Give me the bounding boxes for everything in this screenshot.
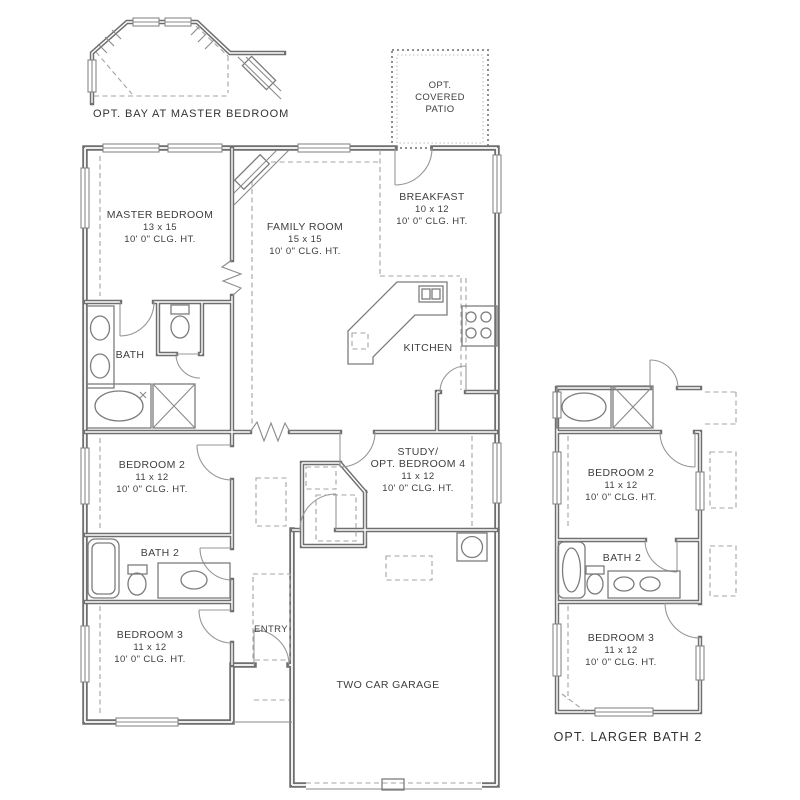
master-bath-fixtures <box>87 305 195 428</box>
master-bedroom-dims: 13 x 15 <box>143 222 177 233</box>
patio-label-1: OPT. <box>429 80 452 91</box>
breakfast-label: BREAKFAST <box>399 191 465 203</box>
inset-bedroom3-dims: 11 x 12 <box>604 645 637 656</box>
family-room-ceiling: 10' 0" CLG. HT. <box>269 246 340 257</box>
bedroom3-ceiling: 10' 0" CLG. HT. <box>114 654 185 665</box>
study-label-1: STUDY/ <box>398 446 439 458</box>
bedroom2-dims: 11 x 12 <box>135 472 168 483</box>
bedroom3-label: BEDROOM 3 <box>117 629 184 641</box>
fireplace-family <box>234 150 289 205</box>
bedroom3-dims: 11 x 12 <box>133 642 166 653</box>
floor-plan-canvas: OPT. BAY AT MASTER BEDROOM OPT. COVERED … <box>0 0 800 800</box>
breakfast-ceiling: 10' 0" CLG. HT. <box>396 216 467 227</box>
opt-bay-caption: OPT. BAY AT MASTER BEDROOM <box>93 108 289 120</box>
master-bedroom-label: MASTER BEDROOM <box>107 209 214 221</box>
bath-label: BATH <box>116 349 145 361</box>
opt-larger-bath-caption: OPT. LARGER BATH 2 <box>554 730 703 744</box>
kitchen-label: KITCHEN <box>404 342 453 354</box>
breakfast-dims: 10 x 12 <box>415 204 449 215</box>
patio-label-2: COVERED <box>415 92 465 103</box>
bedroom2-label: BEDROOM 2 <box>119 459 186 471</box>
family-room-dims: 15 x 15 <box>288 234 322 245</box>
inset-bath2-label: BATH 2 <box>603 552 641 564</box>
cooktop <box>462 306 497 346</box>
family-room-label: FAMILY ROOM <box>267 221 343 233</box>
inset-bedroom3-label: BEDROOM 3 <box>588 632 655 644</box>
garage-door <box>306 778 482 792</box>
entry-label: ENTRY <box>254 624 288 635</box>
inset-bedroom3-ceiling: 10' 0" CLG. HT. <box>585 657 656 668</box>
master-bedroom-ceiling: 10' 0" CLG. HT. <box>124 234 195 245</box>
inset-bedroom2-label: BEDROOM 2 <box>588 467 655 479</box>
study-dims: 11 x 12 <box>401 471 434 482</box>
fireplace-bay <box>238 56 281 99</box>
bedroom2-ceiling: 10' 0" CLG. HT. <box>116 484 187 495</box>
study-ceiling: 10' 0" CLG. HT. <box>382 483 453 494</box>
inset-bedroom2-ceiling: 10' 0" CLG. HT. <box>585 492 656 503</box>
study-label-2: OPT. BEDROOM 4 <box>371 458 466 470</box>
garage-label: TWO CAR GARAGE <box>336 679 439 691</box>
water-heater <box>457 533 487 561</box>
inset-master-bath-fixtures <box>557 386 653 428</box>
floor-plan-page: OPT. BAY AT MASTER BEDROOM OPT. COVERED … <box>0 0 800 800</box>
bath2-label: BATH 2 <box>141 547 179 559</box>
patio-label-3: PATIO <box>425 104 454 115</box>
inset-bath2-fixtures <box>558 542 680 598</box>
inset-bedroom2-dims: 11 x 12 <box>604 480 637 491</box>
